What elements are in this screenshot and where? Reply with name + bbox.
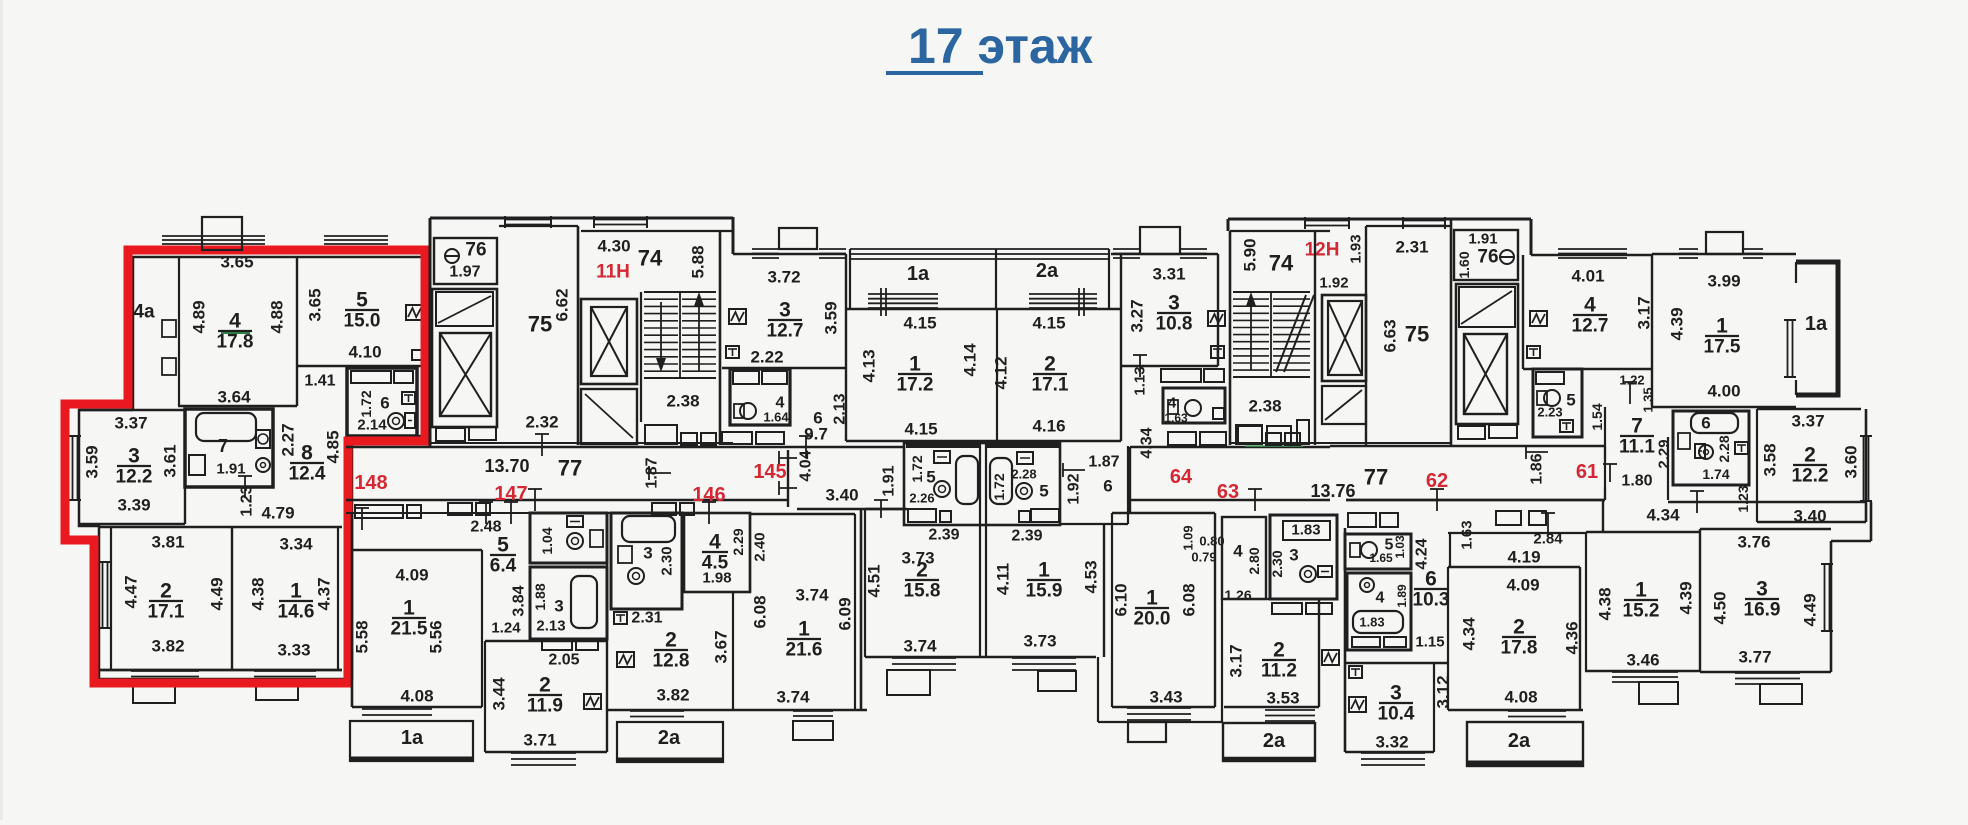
svg-text:12.2: 12.2 — [116, 467, 153, 488]
svg-text:2.30: 2.30 — [1269, 550, 1285, 577]
svg-text:1: 1 — [403, 597, 415, 620]
svg-text:9.7: 9.7 — [804, 425, 828, 444]
svg-text:1: 1 — [1146, 587, 1158, 610]
svg-text:4: 4 — [1376, 590, 1385, 607]
svg-text:1.72: 1.72 — [991, 473, 1007, 500]
svg-text:1а: 1а — [401, 727, 424, 749]
svg-text:5.58: 5.58 — [353, 620, 372, 653]
svg-text:6: 6 — [1425, 568, 1437, 591]
svg-text:17.8: 17.8 — [1501, 638, 1538, 659]
svg-text:1.98: 1.98 — [702, 570, 731, 587]
svg-text:4.08: 4.08 — [400, 687, 433, 706]
svg-text:2.29: 2.29 — [730, 528, 746, 555]
svg-text:4.38: 4.38 — [1596, 587, 1615, 620]
svg-text:1.03: 1.03 — [1393, 535, 1407, 559]
svg-text:1: 1 — [1635, 579, 1647, 602]
svg-text:4.15: 4.15 — [904, 420, 937, 439]
svg-text:1.92: 1.92 — [1319, 275, 1348, 292]
svg-text:3.59: 3.59 — [822, 301, 841, 334]
svg-text:2.28: 2.28 — [1011, 467, 1036, 482]
svg-text:3.37: 3.37 — [1791, 412, 1824, 431]
svg-text:4: 4 — [1168, 395, 1177, 412]
svg-text:3.43: 3.43 — [1149, 688, 1182, 707]
svg-text:1.24: 1.24 — [491, 620, 521, 637]
svg-text:4.10: 4.10 — [348, 343, 381, 362]
svg-text:12Н: 12Н — [1305, 240, 1340, 261]
svg-text:12.4: 12.4 — [289, 464, 326, 485]
svg-text:7: 7 — [1631, 415, 1643, 438]
svg-text:6: 6 — [1103, 477, 1112, 496]
svg-text:17 этаж: 17 этаж — [908, 18, 1093, 74]
svg-text:1: 1 — [290, 580, 302, 603]
svg-text:4.50: 4.50 — [1711, 591, 1730, 624]
svg-text:1.91: 1.91 — [216, 461, 245, 478]
svg-text:4.30: 4.30 — [597, 237, 630, 256]
svg-text:2.40: 2.40 — [752, 532, 769, 561]
svg-text:5.90: 5.90 — [1241, 238, 1260, 271]
svg-text:6.4: 6.4 — [490, 556, 517, 577]
svg-text:6.62: 6.62 — [553, 288, 572, 321]
svg-text:8: 8 — [301, 442, 313, 465]
svg-text:4.34: 4.34 — [1460, 617, 1479, 651]
svg-text:3.74: 3.74 — [903, 637, 937, 656]
svg-text:3: 3 — [1756, 578, 1768, 601]
svg-text:1.63: 1.63 — [1164, 411, 1188, 425]
svg-text:3: 3 — [779, 299, 791, 322]
svg-text:1.65: 1.65 — [1369, 551, 1393, 565]
svg-text:1.83: 1.83 — [1359, 615, 1384, 630]
svg-text:6: 6 — [1701, 414, 1710, 433]
svg-text:1.74: 1.74 — [1702, 466, 1729, 482]
svg-text:15.8: 15.8 — [904, 581, 941, 602]
svg-text:3.12: 3.12 — [1434, 675, 1453, 708]
svg-text:2.26: 2.26 — [909, 491, 934, 506]
svg-text:74: 74 — [638, 246, 663, 271]
svg-text:6: 6 — [380, 394, 389, 413]
svg-text:1.91: 1.91 — [1468, 231, 1497, 248]
svg-text:4.14: 4.14 — [961, 343, 980, 377]
svg-text:2: 2 — [160, 580, 172, 603]
svg-text:2: 2 — [539, 674, 551, 697]
svg-text:4.09: 4.09 — [395, 566, 428, 585]
svg-text:3.67: 3.67 — [712, 630, 731, 663]
svg-text:75: 75 — [1405, 322, 1429, 347]
svg-text:4.79: 4.79 — [261, 504, 294, 523]
svg-text:3.82: 3.82 — [151, 637, 184, 656]
svg-text:1.26: 1.26 — [1224, 587, 1251, 603]
svg-text:3.34: 3.34 — [279, 535, 313, 554]
svg-text:3.31: 3.31 — [1152, 265, 1185, 284]
svg-text:3.40: 3.40 — [825, 486, 858, 505]
svg-text:4.47: 4.47 — [122, 575, 141, 608]
svg-text:1а: 1а — [907, 263, 930, 285]
svg-text:4.01: 4.01 — [1571, 267, 1604, 286]
svg-text:3.40: 3.40 — [1793, 507, 1826, 526]
svg-text:2.27: 2.27 — [279, 423, 298, 456]
svg-text:3.58: 3.58 — [1761, 443, 1780, 476]
svg-text:1.97: 1.97 — [449, 264, 480, 281]
svg-text:3.44: 3.44 — [490, 677, 509, 711]
svg-text:1.93: 1.93 — [1348, 234, 1365, 263]
svg-text:2: 2 — [1513, 616, 1525, 639]
svg-text:1.83: 1.83 — [1291, 522, 1320, 539]
svg-text:1.91: 1.91 — [881, 465, 898, 496]
svg-text:3.77: 3.77 — [1738, 648, 1771, 667]
svg-text:2а: 2а — [658, 727, 681, 749]
svg-text:3: 3 — [643, 544, 652, 563]
svg-text:3.76: 3.76 — [1737, 533, 1770, 552]
svg-text:2.39: 2.39 — [928, 527, 959, 544]
svg-text:4: 4 — [709, 531, 721, 554]
svg-text:1.64: 1.64 — [763, 410, 789, 425]
svg-text:17.1: 17.1 — [1032, 375, 1069, 396]
svg-text:4.49: 4.49 — [1801, 593, 1820, 626]
svg-text:17.5: 17.5 — [1704, 337, 1741, 358]
svg-text:1.87: 1.87 — [1088, 454, 1119, 471]
svg-text:1.72: 1.72 — [909, 455, 925, 482]
svg-text:1.04: 1.04 — [539, 527, 555, 554]
svg-text:17.2: 17.2 — [897, 375, 934, 396]
svg-text:2.32: 2.32 — [525, 413, 558, 432]
svg-text:3.74: 3.74 — [795, 586, 829, 605]
svg-text:4.11: 4.11 — [994, 563, 1013, 595]
svg-text:4.39: 4.39 — [1668, 307, 1687, 340]
svg-text:3: 3 — [128, 445, 140, 468]
svg-text:4а: 4а — [133, 302, 155, 323]
svg-text:4.36: 4.36 — [1563, 621, 1582, 654]
svg-text:1.72: 1.72 — [358, 390, 374, 417]
svg-text:3.17: 3.17 — [1227, 644, 1246, 677]
svg-text:4.19: 4.19 — [1507, 548, 1540, 567]
svg-text:3.27: 3.27 — [1128, 299, 1147, 332]
svg-text:5: 5 — [356, 289, 368, 312]
svg-text:63: 63 — [1217, 481, 1239, 503]
svg-text:1.89: 1.89 — [1395, 584, 1409, 608]
svg-text:14.6: 14.6 — [278, 602, 315, 623]
svg-text:6.09: 6.09 — [836, 597, 855, 630]
svg-text:0.79: 0.79 — [1191, 550, 1216, 565]
svg-text:4.85: 4.85 — [324, 430, 343, 463]
svg-text:76: 76 — [1477, 247, 1498, 268]
svg-text:13.76: 13.76 — [1310, 481, 1355, 501]
svg-text:5.56: 5.56 — [427, 620, 446, 653]
svg-text:74: 74 — [1269, 251, 1294, 276]
svg-text:2.31: 2.31 — [1395, 238, 1428, 257]
svg-text:75: 75 — [528, 312, 552, 337]
svg-text:1.09: 1.09 — [1181, 525, 1196, 550]
svg-text:2.39: 2.39 — [1011, 528, 1042, 545]
svg-text:1.23: 1.23 — [1735, 485, 1751, 512]
svg-text:2.23: 2.23 — [1537, 405, 1562, 420]
svg-text:4.51: 4.51 — [865, 564, 884, 597]
svg-text:3.39: 3.39 — [117, 496, 150, 515]
svg-text:1.22: 1.22 — [1619, 373, 1644, 388]
svg-text:1.63: 1.63 — [1459, 520, 1476, 549]
svg-text:4.09: 4.09 — [1506, 576, 1539, 595]
svg-text:64: 64 — [1170, 466, 1193, 488]
svg-text:15.0: 15.0 — [344, 311, 381, 332]
svg-text:6.10: 6.10 — [1112, 583, 1131, 616]
svg-text:1.15: 1.15 — [1415, 634, 1444, 651]
svg-text:4.39: 4.39 — [1677, 581, 1696, 614]
svg-text:2.28: 2.28 — [1716, 435, 1732, 462]
svg-text:3.64: 3.64 — [217, 388, 251, 407]
svg-text:6.08: 6.08 — [1180, 583, 1199, 616]
svg-text:77: 77 — [1364, 465, 1388, 490]
svg-text:3: 3 — [1390, 682, 1402, 705]
svg-text:12.2: 12.2 — [1792, 466, 1829, 487]
svg-text:4.34: 4.34 — [1646, 506, 1680, 525]
svg-text:13.70: 13.70 — [484, 456, 529, 476]
svg-text:4.13: 4.13 — [860, 349, 879, 382]
svg-text:3: 3 — [554, 597, 563, 616]
svg-text:3.32: 3.32 — [1375, 733, 1408, 752]
svg-text:2: 2 — [665, 629, 677, 652]
svg-text:1.92: 1.92 — [1066, 473, 1083, 504]
svg-text:3: 3 — [1289, 546, 1298, 565]
svg-text:2.31: 2.31 — [631, 610, 662, 627]
svg-text:20.0: 20.0 — [1134, 609, 1171, 630]
svg-text:61: 61 — [1576, 461, 1598, 483]
svg-text:4.15: 4.15 — [903, 314, 936, 333]
svg-text:3.81: 3.81 — [151, 533, 184, 552]
svg-text:76: 76 — [465, 240, 486, 261]
svg-text:5: 5 — [1039, 482, 1048, 501]
svg-text:4: 4 — [1233, 542, 1243, 561]
svg-text:1: 1 — [1716, 315, 1728, 338]
svg-text:4.89: 4.89 — [190, 300, 209, 333]
svg-text:1.88: 1.88 — [532, 583, 548, 610]
svg-text:12.8: 12.8 — [653, 651, 690, 672]
svg-text:3.82: 3.82 — [656, 686, 689, 705]
svg-text:5: 5 — [926, 468, 935, 487]
svg-text:4: 4 — [1584, 294, 1596, 317]
svg-text:10.4: 10.4 — [1378, 704, 1415, 725]
svg-text:2.22: 2.22 — [750, 348, 783, 367]
svg-text:1.23: 1.23 — [239, 485, 256, 516]
svg-text:2а: 2а — [1508, 730, 1531, 752]
svg-text:1: 1 — [1038, 559, 1050, 582]
svg-text:1.60: 1.60 — [1456, 251, 1472, 278]
svg-text:3.17: 3.17 — [1635, 296, 1654, 329]
svg-text:6.63: 6.63 — [1381, 319, 1400, 352]
svg-text:5.88: 5.88 — [689, 245, 708, 278]
svg-text:4.08: 4.08 — [1504, 688, 1537, 707]
svg-text:11.9: 11.9 — [527, 696, 563, 717]
svg-text:4.34: 4.34 — [1139, 427, 1156, 458]
svg-text:4.53: 4.53 — [1082, 560, 1101, 593]
svg-text:148: 148 — [354, 472, 387, 494]
svg-text:2: 2 — [916, 559, 928, 582]
svg-text:2.29: 2.29 — [1656, 439, 1673, 468]
svg-text:2.05: 2.05 — [548, 652, 579, 669]
svg-text:1.80: 1.80 — [1621, 473, 1652, 490]
svg-text:11Н: 11Н — [596, 262, 630, 283]
svg-text:5: 5 — [1566, 391, 1575, 410]
svg-text:77: 77 — [558, 456, 582, 481]
svg-text:1: 1 — [798, 618, 810, 641]
svg-text:2: 2 — [1804, 444, 1816, 467]
svg-text:3.99: 3.99 — [1707, 272, 1740, 291]
svg-text:3.65: 3.65 — [306, 288, 325, 321]
svg-text:3: 3 — [1168, 292, 1180, 315]
svg-text:11.2: 11.2 — [1261, 661, 1297, 682]
svg-text:1.86: 1.86 — [1529, 453, 1546, 484]
svg-text:11.1: 11.1 — [1619, 437, 1655, 458]
svg-text:15.9: 15.9 — [1026, 581, 1063, 602]
svg-text:5: 5 — [497, 534, 509, 557]
svg-text:3.71: 3.71 — [523, 731, 556, 750]
svg-text:4.12: 4.12 — [992, 356, 1011, 389]
svg-text:2.80: 2.80 — [1246, 547, 1262, 574]
svg-text:4.49: 4.49 — [208, 577, 227, 610]
svg-text:4.88: 4.88 — [268, 300, 287, 333]
svg-text:21.6: 21.6 — [786, 640, 823, 661]
svg-text:4.16: 4.16 — [1032, 417, 1065, 436]
svg-text:145: 145 — [753, 461, 786, 483]
svg-text:17.1: 17.1 — [148, 602, 185, 623]
svg-text:3.61: 3.61 — [161, 444, 180, 477]
svg-text:1.54: 1.54 — [1589, 403, 1605, 430]
svg-text:3.65: 3.65 — [220, 253, 253, 272]
svg-text:1.35: 1.35 — [1641, 387, 1656, 412]
svg-text:1: 1 — [909, 353, 921, 376]
svg-text:3.53: 3.53 — [1266, 689, 1299, 708]
svg-text:4.24: 4.24 — [1414, 538, 1431, 569]
svg-text:3.59: 3.59 — [83, 445, 102, 478]
svg-text:10.8: 10.8 — [1156, 314, 1193, 335]
svg-text:2.14: 2.14 — [357, 417, 387, 434]
svg-text:3.46: 3.46 — [1626, 651, 1659, 670]
svg-text:2.38: 2.38 — [666, 392, 699, 411]
svg-text:2.13: 2.13 — [536, 618, 565, 635]
svg-text:2: 2 — [1044, 353, 1056, 376]
svg-text:3.74: 3.74 — [776, 688, 810, 707]
svg-text:1а: 1а — [1805, 313, 1828, 335]
svg-text:4: 4 — [229, 310, 241, 333]
svg-text:3.33: 3.33 — [277, 641, 310, 660]
svg-text:3.84: 3.84 — [511, 585, 528, 616]
svg-text:7: 7 — [218, 436, 228, 456]
svg-text:2.30: 2.30 — [659, 546, 676, 575]
svg-text:17.8: 17.8 — [217, 332, 254, 353]
svg-text:4.00: 4.00 — [1707, 382, 1740, 401]
svg-text:3.73: 3.73 — [1023, 632, 1056, 651]
svg-text:21.5: 21.5 — [391, 619, 428, 640]
svg-text:12.7: 12.7 — [767, 321, 804, 342]
svg-text:2.38: 2.38 — [1248, 397, 1281, 416]
svg-text:3.37: 3.37 — [114, 414, 147, 433]
svg-text:4.37: 4.37 — [315, 577, 334, 610]
svg-text:16.9: 16.9 — [1744, 600, 1781, 621]
svg-text:3.60: 3.60 — [1842, 445, 1861, 478]
svg-text:4.15: 4.15 — [1032, 314, 1065, 333]
svg-text:4.38: 4.38 — [249, 577, 268, 610]
svg-text:0.80: 0.80 — [1199, 534, 1224, 549]
svg-text:15.2: 15.2 — [1623, 601, 1660, 622]
svg-text:1.41: 1.41 — [304, 373, 335, 390]
svg-text:2: 2 — [1273, 639, 1285, 662]
svg-text:2а: 2а — [1036, 260, 1059, 282]
svg-text:10.3: 10.3 — [1413, 590, 1450, 611]
svg-text:2а: 2а — [1263, 730, 1286, 752]
svg-text:12.7: 12.7 — [1572, 316, 1609, 337]
svg-text:3.72: 3.72 — [767, 268, 800, 287]
svg-text:6.08: 6.08 — [751, 595, 770, 628]
